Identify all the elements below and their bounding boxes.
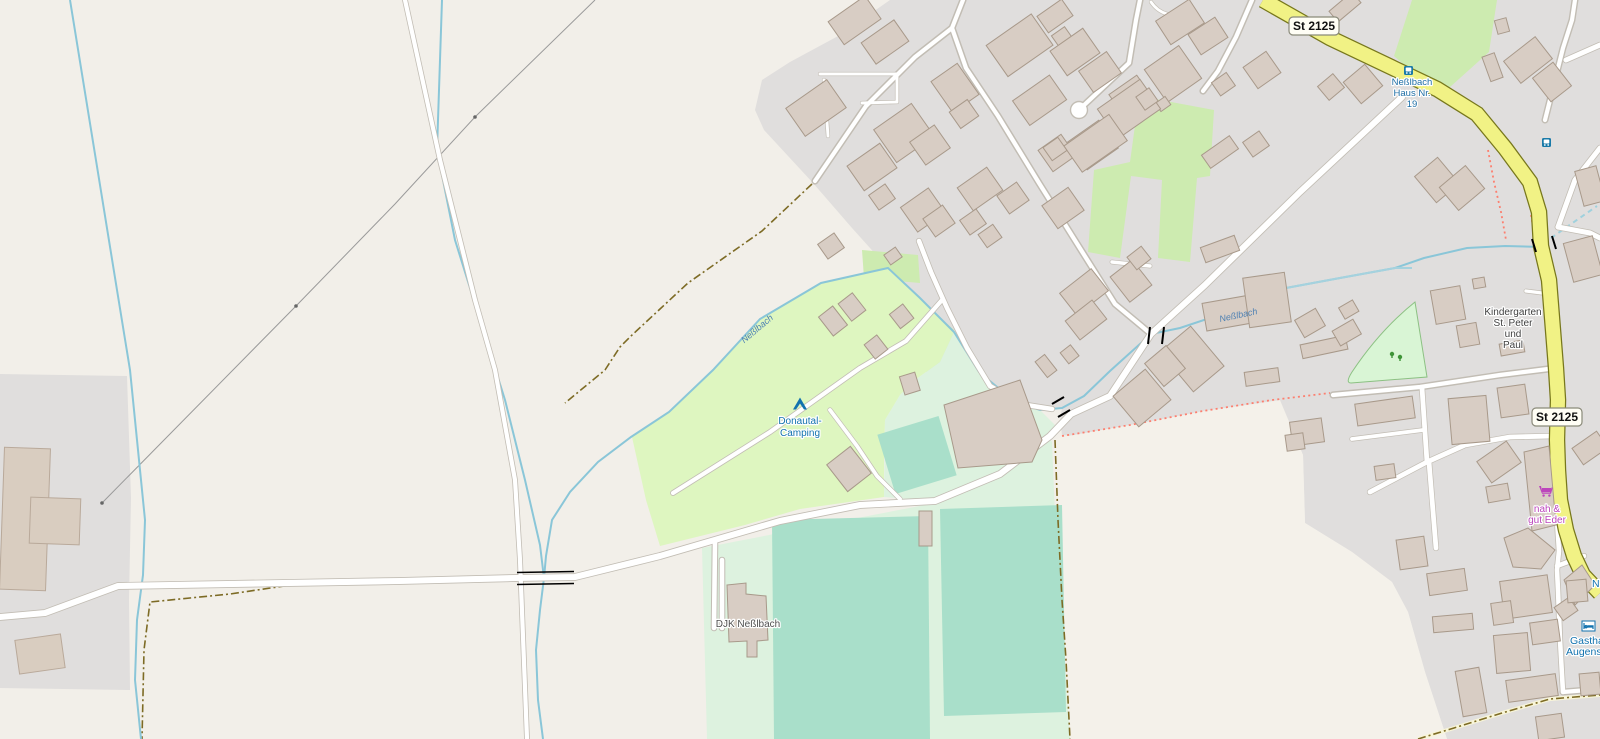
svg-text:19: 19 [1407, 99, 1418, 110]
svg-text:nah &: nah & [1534, 504, 1560, 515]
svg-text:St. Peter: St. Peter [1494, 318, 1534, 329]
svg-text:und: und [1505, 329, 1522, 340]
svg-text:Kindergarten: Kindergarten [1484, 307, 1541, 318]
svg-text:Neßlbach: Neßlbach [1392, 77, 1433, 88]
svg-text:Donautal-: Donautal- [778, 416, 821, 427]
svg-text:Paul: Paul [1503, 340, 1523, 351]
svg-text:St 2125: St 2125 [1536, 410, 1578, 424]
svg-text:N: N [1592, 578, 1600, 590]
svg-text:gut Eder: gut Eder [1528, 515, 1566, 526]
svg-text:DJK Neßlbach: DJK Neßlbach [716, 619, 780, 630]
svg-text:Haus Nr.: Haus Nr. [1394, 88, 1431, 99]
svg-text:St 2125: St 2125 [1293, 19, 1335, 33]
svg-text:Camping: Camping [780, 428, 820, 439]
svg-text:Augenst: Augenst [1566, 646, 1600, 658]
